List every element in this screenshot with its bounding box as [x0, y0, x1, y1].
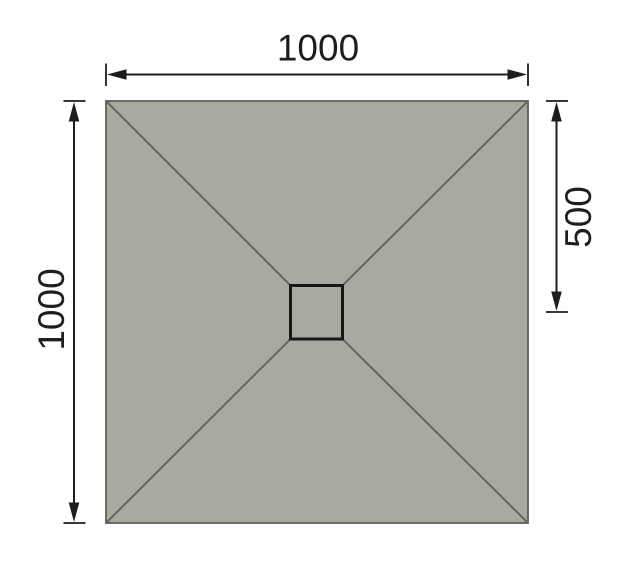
svg-text:1000: 1000 — [31, 268, 72, 350]
svg-text:500: 500 — [558, 186, 599, 248]
svg-text:1000: 1000 — [277, 28, 359, 69]
